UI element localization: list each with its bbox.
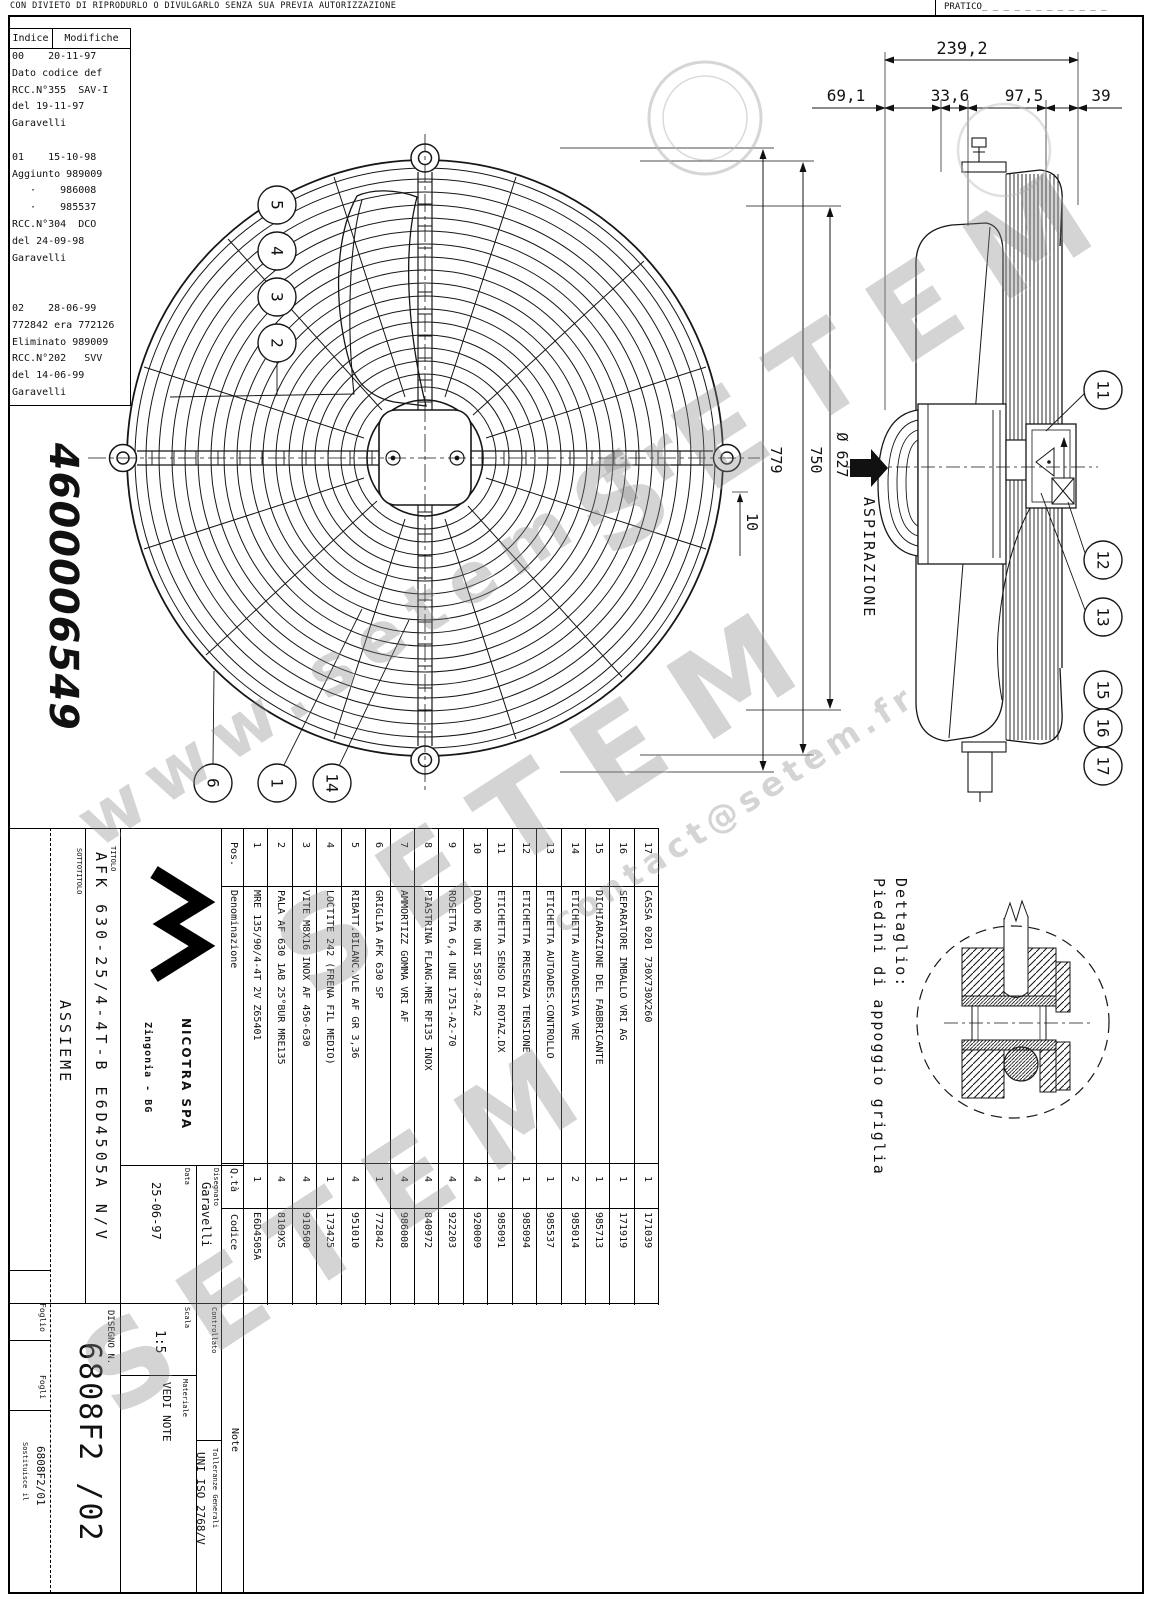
stamp-marks <box>649 62 1050 196</box>
balloon-label: 3 <box>268 292 287 302</box>
part-pos: 10 <box>471 842 481 854</box>
note-label: Note <box>229 1428 239 1452</box>
balloon-label: 17 <box>1094 756 1113 775</box>
balloon-14: 14 <box>313 764 351 802</box>
part-code: 840972 <box>422 1212 432 1248</box>
balloon-label: 1 <box>268 778 287 788</box>
parts-header-qty: Q.tà <box>228 1168 238 1192</box>
part-code: 985091 <box>495 1212 505 1248</box>
detail-circle <box>917 926 1109 1118</box>
balloon-label: 12 <box>1094 550 1113 569</box>
parts-row-13: 13ETICHETTA AUTOADES.CONTROLLO1985537 <box>536 828 560 1305</box>
part-code: E6D4505A <box>251 1212 261 1260</box>
part-name: ETICHETTA SENSO DI ROTAZ.DX <box>495 890 505 1053</box>
balloon-label: 13 <box>1094 607 1113 626</box>
titolo-value: AFK 630-25/4-4T-B E6D4505A N/V <box>93 852 108 1243</box>
part-code: 772842 <box>373 1212 383 1248</box>
part-code: 985014 <box>569 1212 579 1248</box>
balloon-12: 12 <box>1084 541 1122 579</box>
parts-row-14: 14ETICHETTA AUTOADESIVA VRE2985014 <box>561 828 585 1305</box>
foot-cross-section <box>944 901 1090 1098</box>
part-qty: 4 <box>446 1176 456 1182</box>
sostituisce-label: Sostituisce il <box>21 1442 28 1501</box>
part-qty: 1 <box>495 1176 505 1182</box>
parts-header-pos: Pos. <box>228 842 238 866</box>
parts-row-12: 12ETICHETTA PRESENZA TENSIONE1985094 <box>512 828 536 1305</box>
part-name: ETICHETTA AUTOADESIVA VRE <box>569 890 579 1041</box>
titleblock-line <box>85 828 86 1303</box>
part-pos: 14 <box>569 842 579 854</box>
fogli-label: Fogli <box>38 1375 46 1399</box>
part-pos: 5 <box>349 842 359 848</box>
part-qty: 4 <box>398 1176 408 1182</box>
part-code: 173425 <box>324 1212 334 1248</box>
dim-seg4: 39 <box>1091 86 1110 105</box>
part-name: RIBATT.BILANC.VLE AF GR 3,36 <box>349 890 359 1059</box>
part-name: PALA AF 630 1AB 25°BUR MRE135 <box>275 890 285 1065</box>
balloon-3: 3 <box>258 278 296 316</box>
parts-row-8: 8PIASTRINA FLANG.MRE RF135 INOX4840972 <box>414 828 438 1305</box>
parts-table-header: Pos. Denominazione Q.tà Codice <box>221 828 243 1305</box>
part-pos: 2 <box>275 842 285 848</box>
part-qty: 4 <box>471 1176 481 1182</box>
part-pos: 6 <box>373 842 383 848</box>
part-qty: 1 <box>251 1176 261 1182</box>
balloon-label: 11 <box>1094 380 1113 399</box>
scala-value: 1:5 <box>153 1330 166 1353</box>
part-qty: 4 <box>275 1176 285 1182</box>
balloon-label: 14 <box>323 773 342 792</box>
dim-overall-depth: 239,2 <box>936 39 987 59</box>
part-name: MRE 135/90/4-4T 2V Z65401 <box>251 890 261 1041</box>
parts-row-15: 15DICHIARAZIONE DEL FABBRICANTE1985713 <box>585 828 609 1305</box>
table-right-line <box>658 828 659 1305</box>
warning-dot <box>1048 461 1051 464</box>
detail-title: Dettaglio: <box>892 878 910 988</box>
data-value: 25-06-97 <box>150 1182 162 1240</box>
balloon-label: 5 <box>268 200 287 210</box>
grille-foot-bottom <box>962 742 1006 802</box>
parts-row-9: 9ROSETTA 6,4 UNI 1751-A2-704922203 <box>438 828 462 1305</box>
materiale-value: VEDI NOTE <box>161 1382 172 1442</box>
dim-guard-diameter: 750 <box>807 446 825 473</box>
part-code: 171919 <box>617 1212 627 1248</box>
dim-seg3: 97,5 <box>1005 86 1044 105</box>
part-pos: 9 <box>446 842 456 848</box>
parts-row-3: 3VITE M8X16 INOX AF 450-6304910500 <box>292 828 316 1305</box>
part-code: 171039 <box>642 1212 652 1248</box>
dim-grille-gap: 10 <box>743 513 761 531</box>
part-pos: 11 <box>495 842 505 854</box>
balloon-11: 11 <box>1084 371 1122 409</box>
balloon-13: 13 <box>1084 598 1122 636</box>
foglio-label: Foglio <box>38 1303 46 1332</box>
part-code: 922203 <box>446 1212 456 1248</box>
part-name: ROSETTA 6,4 UNI 1751-A2-70 <box>446 890 456 1047</box>
drawing-canvas: 779 750 Ø 627 10 ASPIRAZIONE 239,2 69,1 … <box>0 0 1152 1603</box>
parts-row-4: 4LOCTITE 242 (FRENA FIL MEDIO)1173425 <box>316 828 340 1305</box>
balloon-6: 6 <box>194 764 232 802</box>
part-qty: 4 <box>300 1176 310 1182</box>
nicotra-logo <box>154 872 202 976</box>
balloon-1: 1 <box>258 764 296 802</box>
part-name: GRIGLIA AFK 630 SP <box>373 890 383 998</box>
part-code: 910500 <box>300 1212 310 1248</box>
part-name: AMMORTIZZ GOMMA VRI AF <box>398 890 408 1022</box>
controllato-label: Controllato <box>210 1307 217 1353</box>
part-qty: 1 <box>324 1176 334 1182</box>
fold-line <box>50 828 51 1593</box>
materiale-label: Materiale <box>181 1379 188 1417</box>
titleblock-line <box>8 1270 50 1271</box>
part-code: 920009 <box>471 1212 481 1248</box>
part-code: 8109X5 <box>275 1212 285 1248</box>
hub-shaft <box>1006 440 1028 480</box>
part-pos: 8 <box>422 842 432 848</box>
parts-row-10: 10DADO M6 UNI 5587-8-A24920009 <box>463 828 487 1305</box>
disegnato-value: Garavelli <box>200 1182 212 1247</box>
company-name: NICOTRA SPA <box>180 1018 192 1130</box>
balloon-label: 6 <box>204 778 223 788</box>
label-plate <box>1052 478 1074 504</box>
part-name: PIASTRINA FLANG.MRE RF135 INOX <box>422 890 432 1071</box>
part-qty: 4 <box>349 1176 359 1182</box>
balloon-2: 2 <box>258 324 296 362</box>
part-qty: 1 <box>593 1176 603 1182</box>
titleblock-line <box>120 828 121 1593</box>
part-code: 986008 <box>398 1212 408 1248</box>
tolleranze-value: UNI ISO 2768/V <box>195 1452 206 1545</box>
part-qty: 1 <box>520 1176 530 1182</box>
sostituisce-value: 6808F2/01 <box>35 1446 46 1506</box>
sottotitolo-label: SOTTOTITOLO <box>75 848 82 894</box>
dim-seg1: 69,1 <box>827 86 866 105</box>
sottotitolo-value: ASSIEME <box>57 1000 72 1084</box>
part-name: ETICHETTA AUTOADES.CONTROLLO <box>544 890 554 1059</box>
part-code: 985537 <box>544 1212 554 1248</box>
scala-label: Scala <box>183 1307 190 1328</box>
part-qty: 1 <box>642 1176 652 1182</box>
titleblock-line <box>120 1375 196 1376</box>
part-pos: 12 <box>520 842 530 854</box>
part-code: 985713 <box>593 1212 603 1248</box>
part-qty: 4 <box>422 1176 432 1182</box>
front-view <box>88 134 760 794</box>
balloon-15: 15 <box>1084 671 1122 709</box>
part-name: DADO M6 UNI 5587-8-A2 <box>471 890 481 1016</box>
dim-impeller-diameter: Ø 627 <box>833 432 851 477</box>
parts-row-6: 6GRIGLIA AFK 630 SP1772842 <box>365 828 389 1305</box>
part-pos: 3 <box>300 842 310 848</box>
parts-header-code: Codice <box>228 1214 238 1250</box>
detail-view: Dettaglio: Piedini di appoggio griglia <box>870 878 1109 1176</box>
motor-dome <box>878 410 918 556</box>
part-code: 951010 <box>349 1212 359 1248</box>
part-code: 985094 <box>520 1212 530 1248</box>
part-name: LOCTITE 242 (FRENA FIL MEDIO) <box>324 890 334 1065</box>
part-pos: 16 <box>617 842 627 854</box>
parts-row-11: 11ETICHETTA SENSO DI ROTAZ.DX1985091 <box>487 828 511 1305</box>
part-pos: 13 <box>544 842 554 854</box>
part-name: SEPARATORE IMBALLO VRI AG <box>617 890 627 1041</box>
parts-row-17: 17CASSA 0201 730X730X2601171039 <box>634 828 658 1305</box>
balloon-4: 4 <box>258 232 296 270</box>
parts-row-5: 5RIBATT.BILANC.VLE AF GR 3,364951010 <box>341 828 365 1305</box>
disegnato-label: Disegnato <box>212 1168 219 1206</box>
titleblock-line <box>8 1410 50 1411</box>
part-pos: 15 <box>593 842 603 854</box>
balloon-label: 4 <box>268 246 287 256</box>
part-qty: 2 <box>569 1176 579 1182</box>
disegno-number: 6808F2 /02 <box>74 1342 104 1543</box>
parts-row-7: 7AMMORTIZZ GOMMA VRI AF4986008 <box>390 828 414 1305</box>
part-qty: 1 <box>617 1176 627 1182</box>
parts-row-2: 2PALA AF 630 1AB 25°BUR MRE13548109X5 <box>267 828 291 1305</box>
balloon-label: 15 <box>1094 680 1113 699</box>
part-name: VITE M8X16 INOX AF 450-630 <box>300 890 310 1047</box>
data-label: Data <box>183 1168 190 1185</box>
dim-overall-height: 779 <box>767 446 785 473</box>
balloon-label: 16 <box>1094 718 1113 737</box>
part-pos: 7 <box>398 842 408 848</box>
part-qty: 1 <box>373 1176 383 1182</box>
part-pos: 17 <box>642 842 652 854</box>
part-name: ETICHETTA PRESENZA TENSIONE <box>520 890 530 1053</box>
titolo-label: TITOLO <box>109 846 116 871</box>
grille-foot-top <box>962 138 1006 172</box>
part-pos: 4 <box>324 842 334 848</box>
balloon-16: 16 <box>1084 709 1122 747</box>
detail-subtitle: Piedini di appoggio griglia <box>870 878 888 1176</box>
parts-row-1: 1MRE 135/90/4-4T 2V Z654011E6D4505A <box>243 828 267 1305</box>
airflow-label: ASPIRAZIONE <box>860 497 878 618</box>
part-name: CASSA 0201 730X730X260 <box>642 890 652 1022</box>
company-city: Zingonia - BG <box>142 1022 152 1113</box>
part-name: DICHIARAZIONE DEL FABBRICANTE <box>593 890 603 1065</box>
part-pos: 1 <box>251 842 261 848</box>
parts-header-name: Denominazione <box>228 890 238 968</box>
tolleranze-label: Tolleranze Generali <box>211 1448 218 1528</box>
balloon-5: 5 <box>258 186 296 224</box>
dim-seg2: 33,6 <box>931 86 970 105</box>
part-qty: 1 <box>544 1176 554 1182</box>
parts-row-16: 16SEPARATORE IMBALLO VRI AG1171919 <box>609 828 633 1305</box>
balloon-17: 17 <box>1084 747 1122 785</box>
balloon-label: 2 <box>268 338 287 348</box>
titleblock-line <box>8 1340 50 1341</box>
titleblock-line <box>196 1440 221 1441</box>
